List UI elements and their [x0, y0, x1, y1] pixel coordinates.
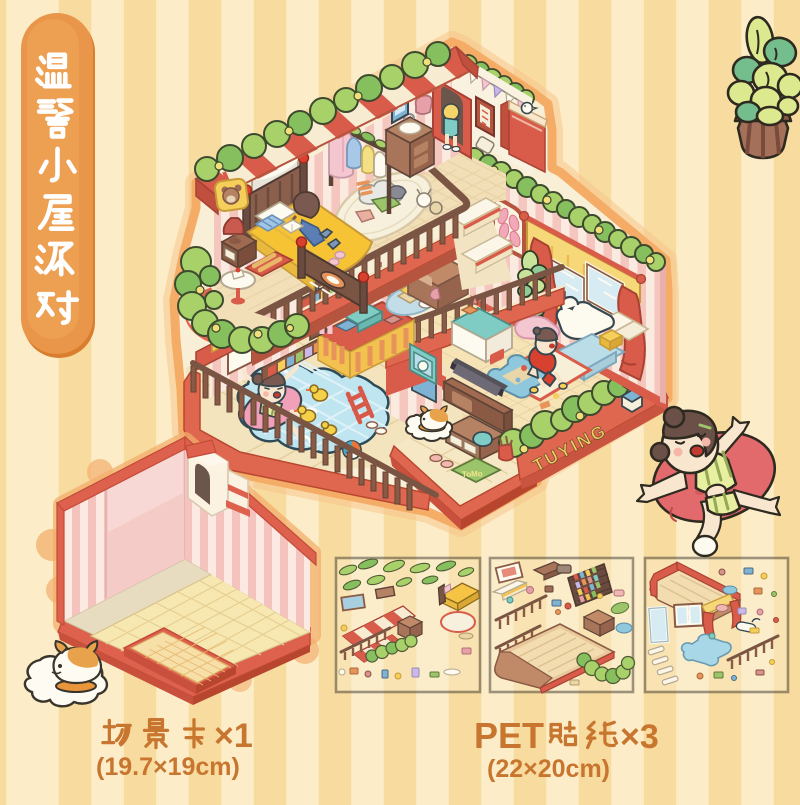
svg-text:ToMo: ToMo [462, 469, 483, 479]
svg-text:×3: ×3 [620, 718, 659, 756]
svg-text:(19.7×19cm): (19.7×19cm) [96, 753, 240, 781]
svg-text:PET: PET [474, 715, 544, 756]
svg-text:×1: ×1 [214, 717, 253, 755]
svg-text:(22×20cm): (22×20cm) [487, 755, 610, 783]
